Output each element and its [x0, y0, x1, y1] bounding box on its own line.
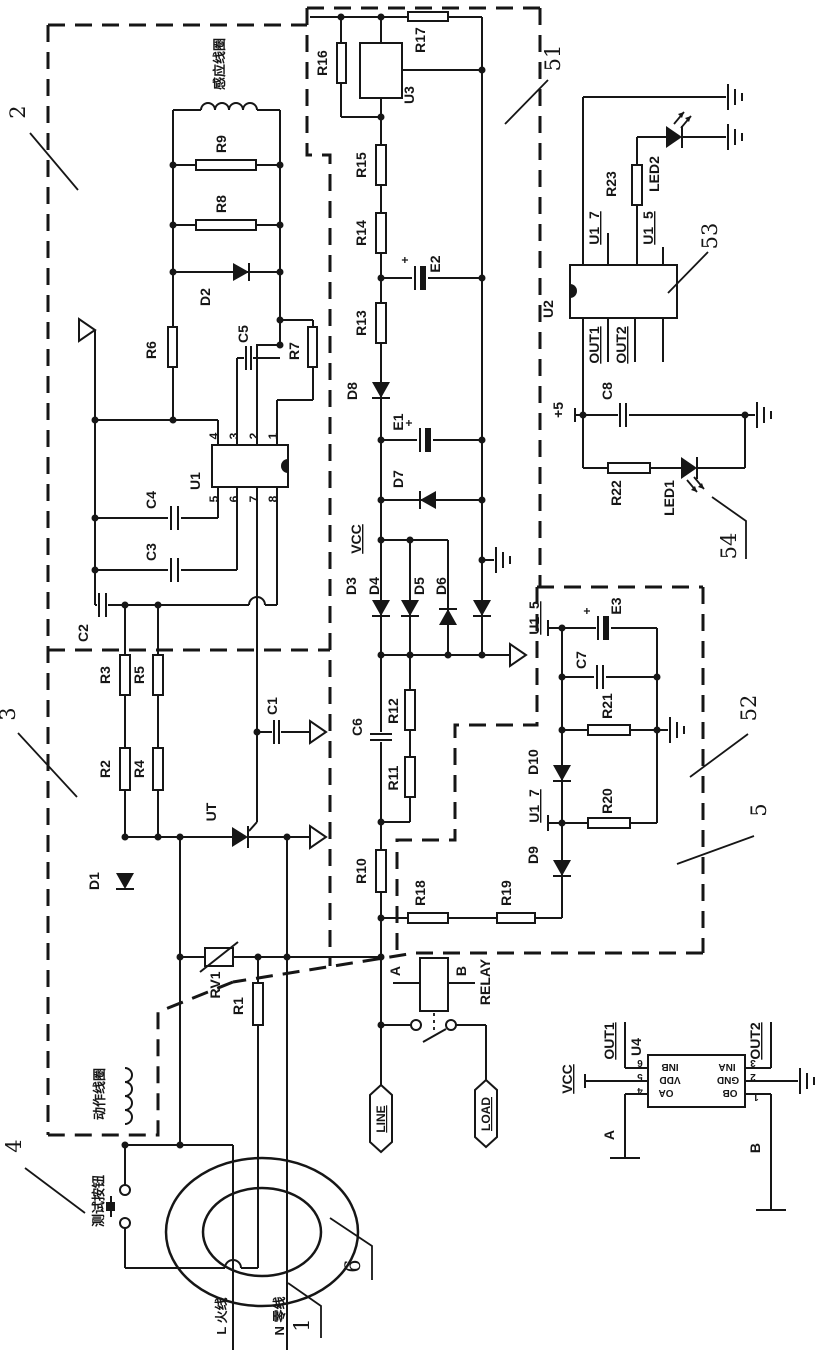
resistor-r1	[253, 983, 263, 1025]
label-r20: R20	[599, 788, 615, 814]
schematic-page: 感应线圈 动作线圈	[0, 0, 830, 1350]
label-r21: R21	[599, 693, 615, 719]
wiring-module-52	[548, 620, 668, 888]
label-u2-out2: OUT2	[613, 326, 629, 364]
label-live-wire: L 火线	[214, 1297, 229, 1334]
resistor-r2	[120, 748, 130, 790]
label-u4-ina: INA	[718, 1061, 735, 1072]
line-terminal-flag: LINE	[370, 1085, 392, 1152]
label-e2-plus: +	[398, 256, 412, 263]
label-u4-pin4: 4	[637, 1085, 643, 1096]
callout-51-leader	[505, 80, 548, 124]
label-ut: UT	[203, 802, 219, 821]
callout-54: 54	[717, 533, 741, 560]
label-c4: C4	[143, 491, 159, 509]
resistor-r9	[196, 160, 256, 170]
callout-52: 52	[737, 695, 761, 722]
circuit-schematic: 感应线圈 动作线圈	[0, 0, 830, 1350]
load-terminal-label: LOAD	[479, 1097, 493, 1131]
label-r3: R3	[97, 666, 113, 684]
label-r11: R11	[385, 765, 401, 790]
resistor-r14	[376, 213, 386, 253]
chip-u2	[570, 265, 677, 318]
label-u1-pin4: 4	[207, 432, 221, 439]
current-transformer-toroid	[166, 1158, 358, 1306]
ground-icon	[800, 1068, 814, 1094]
action-coil: 动作线圈	[92, 1068, 132, 1124]
label-net-u1-7: U1_7	[526, 789, 542, 823]
capacitor-e3	[598, 616, 609, 640]
diode-d6	[473, 600, 491, 616]
resistor-r12	[405, 690, 415, 730]
diode-d5	[439, 609, 457, 625]
label-u1-pin3: 3	[227, 432, 241, 439]
diode-led1	[681, 457, 704, 492]
relay	[411, 958, 456, 1042]
label-vcc: VCC	[348, 524, 364, 554]
label-r1: R1	[230, 997, 246, 1015]
label-u1-pin6: 6	[227, 495, 241, 502]
label-r23: R23	[603, 171, 619, 197]
diode-led2	[666, 112, 691, 148]
resistor-r8	[196, 220, 256, 230]
label-led1: LED1	[661, 480, 677, 516]
callout-53: 53	[698, 223, 722, 250]
diode-d3	[372, 600, 390, 616]
label-c2: C2	[75, 624, 91, 642]
label-e2: E2	[427, 255, 443, 272]
callout-4-leader	[25, 1168, 85, 1213]
chip-u1	[212, 445, 288, 487]
capacitor-c8	[620, 403, 626, 427]
diode-d10	[553, 765, 571, 781]
label-u4-vcc: VCC	[559, 1064, 575, 1094]
test-button-label: 测试按钮	[91, 1175, 106, 1227]
callout-52-leader	[690, 734, 748, 777]
label-u1: U1	[187, 472, 203, 490]
label-u1-pin7: 7	[247, 495, 261, 502]
label-u4-b: B	[747, 1143, 763, 1153]
capacitor-e1	[420, 428, 431, 452]
label-d10: D10	[525, 749, 541, 775]
thyristor-ut	[232, 826, 248, 848]
label-c3: C3	[143, 543, 159, 561]
label-c5: C5	[235, 325, 251, 343]
ground-icon	[757, 402, 771, 428]
diode-d2	[233, 263, 249, 281]
label-u2-u1-7: U1_7	[586, 211, 602, 245]
label-rv1: RV1	[207, 971, 223, 998]
label-relay-a: A	[387, 966, 403, 976]
resistor-r21	[588, 725, 630, 735]
label-u1-pin5: 5	[207, 495, 221, 502]
module-2-51-divider	[307, 8, 330, 966]
arrow-icon	[310, 826, 326, 848]
label-u4: U4	[628, 1038, 644, 1056]
label-plus5: +5	[550, 402, 566, 418]
label-d3: D3	[343, 577, 359, 595]
label-net-u1-5: U1_5	[526, 601, 542, 635]
ground-icon	[496, 547, 510, 573]
ground-icon	[728, 124, 742, 150]
label-u4-inb: INB	[661, 1061, 678, 1072]
callout-5-leader	[677, 836, 754, 864]
label-u1-pin8: 8	[266, 495, 280, 502]
label-u4-out2: OUT2	[747, 1022, 763, 1060]
label-r17: R17	[412, 27, 428, 53]
capacitor-c1	[274, 720, 279, 744]
capacitor-c3	[171, 558, 178, 582]
label-r9: R9	[213, 135, 229, 153]
label-c7: C7	[573, 651, 589, 669]
label-d8: D8	[344, 382, 360, 400]
capacitor-e2	[415, 266, 426, 290]
label-u2-out1: OUT1	[586, 326, 602, 364]
label-u4-vdd: VDD	[659, 1074, 680, 1085]
induction-coil: 感应线圈	[201, 38, 257, 110]
capacitor-c2	[99, 593, 106, 617]
resistor-r7	[308, 327, 317, 367]
label-r22: R22	[608, 480, 624, 506]
label-r13: R13	[353, 310, 369, 336]
resistor-r10	[376, 850, 386, 892]
arrow-icon	[510, 644, 526, 666]
label-r7: R7	[286, 342, 302, 360]
label-u4-pin2: 2	[750, 1071, 756, 1082]
resistor-r17	[408, 12, 448, 21]
resistor-r13	[376, 303, 386, 343]
diode-d1	[116, 873, 134, 889]
diode-d4	[401, 600, 419, 616]
label-r12: R12	[385, 698, 401, 724]
label-r14: R14	[353, 220, 369, 246]
arrow-icon	[79, 319, 95, 341]
label-relay: RELAY	[477, 958, 493, 1005]
callout-4: 4	[2, 1139, 26, 1152]
label-r18: R18	[412, 880, 428, 906]
capacitor-c5	[246, 346, 251, 370]
component-labels: R9 R8 D2 R6 C5 R7 U1 4 3 2 1 5 6 7 8 C4 …	[75, 27, 763, 1336]
resistor-r6	[168, 327, 177, 367]
label-u3: U3	[401, 86, 417, 104]
resistor-r23	[632, 165, 642, 205]
ground-icon	[670, 717, 684, 743]
label-c6: C6	[349, 718, 365, 736]
arrow-icon	[310, 721, 326, 743]
label-u2-u1-5: U1_5	[640, 211, 656, 245]
label-r5: R5	[131, 666, 147, 684]
label-d2: D2	[197, 288, 213, 306]
resistor-r5	[153, 655, 163, 695]
label-r10: R10	[353, 858, 369, 884]
diode-d9	[553, 860, 571, 876]
callout-1: 1	[290, 1318, 314, 1331]
resistor-r19	[497, 913, 535, 923]
induction-coil-label: 感应线圈	[212, 38, 227, 90]
label-r2: R2	[97, 760, 113, 778]
load-terminal-flag: LOAD	[475, 1080, 497, 1147]
callout-2: 2	[6, 105, 30, 118]
label-d7: D7	[390, 470, 406, 488]
wiring	[95, 17, 798, 1350]
label-e3: E3	[608, 597, 624, 614]
resistor-r11	[405, 757, 415, 797]
resistor-r22	[608, 463, 650, 473]
label-u4-out1: OUT1	[601, 1022, 617, 1060]
label-r6: R6	[143, 341, 159, 359]
capacitor-c7	[597, 665, 603, 689]
callout-5: 5	[747, 803, 771, 816]
label-r4: R4	[131, 760, 147, 778]
resistor-r18	[408, 913, 448, 923]
resistor-r3	[120, 655, 130, 695]
label-u4-pin3: 3	[750, 1057, 756, 1068]
label-d6: D6	[433, 577, 449, 595]
wiring-module-3	[125, 605, 381, 1350]
diode-d8	[372, 382, 390, 398]
label-u2: U2	[540, 300, 556, 318]
label-c1: C1	[264, 697, 280, 715]
module-3-pocket	[48, 982, 233, 1135]
diode-d7	[420, 491, 436, 509]
resistor-r15	[376, 145, 386, 185]
resistor-r20	[588, 818, 630, 828]
label-u4-oa: OA	[659, 1087, 674, 1098]
label-u4-ob: OB	[723, 1087, 738, 1098]
action-coil-label: 动作线圈	[92, 1068, 107, 1120]
capacitors	[99, 266, 626, 744]
label-e3-plus: +	[580, 607, 594, 614]
varistor-rv1	[200, 942, 238, 972]
resistor-r4	[153, 748, 163, 790]
callout-51: 51	[541, 45, 565, 72]
chip-u3	[360, 43, 402, 98]
capacitor-c6	[370, 734, 392, 740]
resistor-r16	[337, 43, 346, 83]
label-e1-plus: +	[402, 419, 416, 426]
label-d4: D4	[366, 577, 382, 595]
ground-icon	[728, 84, 742, 110]
label-u4-gnd: GND	[717, 1074, 739, 1085]
capacitor-c4	[171, 506, 178, 530]
label-r8: R8	[213, 195, 229, 213]
label-d9: D9	[525, 846, 541, 864]
label-u1-pin2: 2	[247, 432, 261, 439]
label-d1: D1	[86, 872, 102, 890]
label-neutral-wire: N 零线	[272, 1296, 287, 1335]
label-u1-pin1: 1	[266, 432, 280, 439]
label-u4-a: A	[601, 1130, 617, 1140]
label-u4-pin1: 1	[753, 1091, 759, 1102]
line-terminal-label: LINE	[374, 1105, 388, 1132]
callout-3: 3	[0, 707, 20, 720]
relay-switch-blade	[423, 1029, 446, 1042]
label-r15: R15	[353, 152, 369, 178]
label-relay-b: B	[453, 966, 469, 976]
label-u4-pin6: 6	[637, 1057, 643, 1068]
label-r19: R19	[498, 880, 514, 906]
label-u4-pin5: 5	[637, 1071, 643, 1082]
callout-6: 6	[341, 1259, 365, 1272]
label-r16: R16	[314, 50, 330, 76]
wiring-module-51	[310, 17, 562, 1025]
label-led2: LED2	[646, 156, 662, 192]
label-d5: D5	[411, 577, 427, 595]
label-c8: C8	[599, 382, 615, 400]
callout-2-leader	[30, 133, 78, 190]
